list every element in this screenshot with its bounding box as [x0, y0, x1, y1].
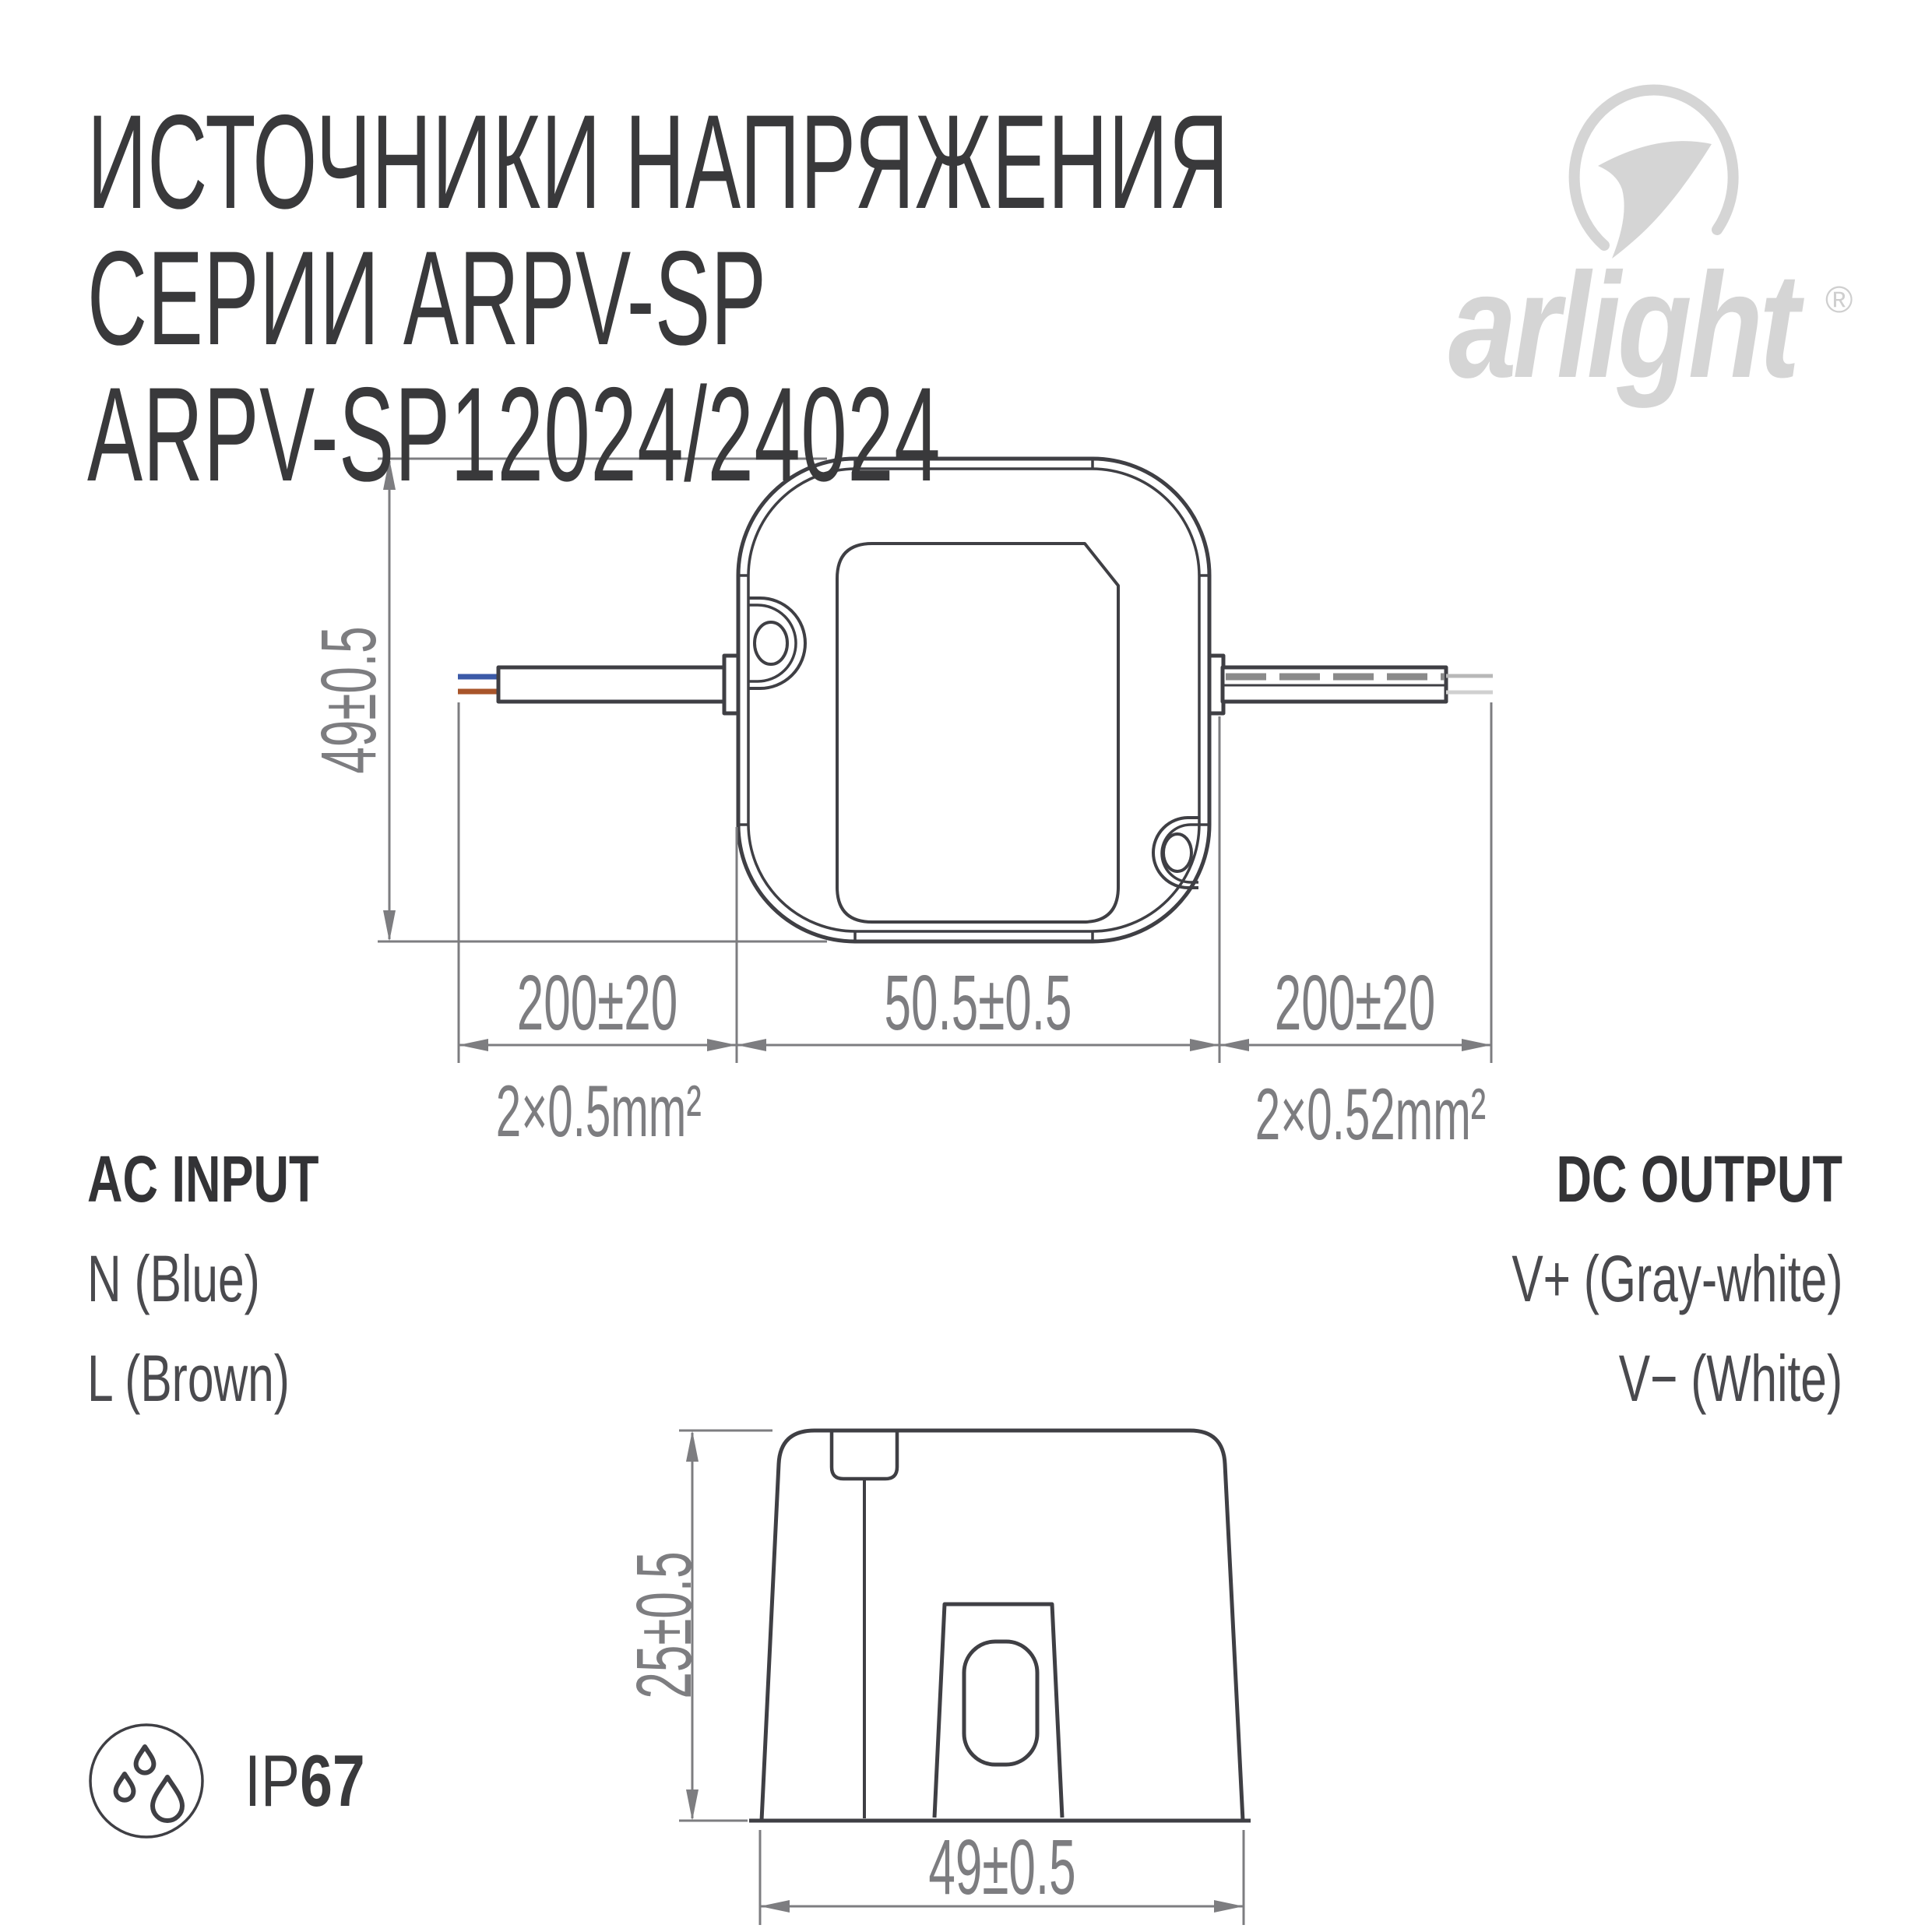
water-drop-small-top — [136, 1747, 154, 1773]
right-wire-length-dim-label: 200±20 — [1258, 964, 1452, 1042]
body-width-dim-label: 50.5±0.5 — [882, 964, 1075, 1042]
dc-output-heading: DC OUTPUT — [1557, 1146, 1842, 1212]
ip-rating-prefix: IP — [245, 1740, 300, 1821]
mounting-ear-bottom-right — [1153, 818, 1198, 888]
water-drop-large — [153, 1777, 182, 1821]
label-area — [837, 544, 1118, 922]
ip-rating-value: 67 — [300, 1740, 365, 1821]
ip67-water-icon — [90, 1725, 202, 1837]
mounting-hole — [1163, 834, 1191, 871]
water-drop-small-left — [116, 1774, 134, 1800]
ac-input-neutral-label: N (Blue) — [87, 1246, 260, 1311]
arlight-logo-text: arlight — [1448, 251, 1797, 400]
ac-input-heading: AC INPUT — [87, 1146, 319, 1212]
page-title-line-1: ИСТОЧНИКИ НАПРЯЖЕНИЯ — [87, 95, 1229, 229]
badge-circle — [90, 1725, 202, 1837]
cable-sheath — [498, 667, 724, 702]
rim-corner-ticks — [738, 459, 1209, 941]
datasheet-page: ИСТОЧНИКИ НАПРЯЖЕНИЯ СЕРИИ ARPV-SP ARPV-… — [0, 0, 1932, 1932]
right-wire-cross-section-label: 2×0.52mm² — [1255, 1078, 1458, 1151]
body-inner-rim — [748, 469, 1199, 931]
page-title-line-3: ARPV-SP12024/24024 — [87, 368, 941, 501]
mounting-ear-top-left — [749, 598, 805, 688]
left-wire-cross-section-label: 2×0.5mm² — [496, 1075, 699, 1148]
dc-output-plus-label: V+ (Gray-white) — [1511, 1246, 1842, 1311]
top-view-drawing — [458, 459, 1493, 941]
body-outer-contour — [738, 459, 1209, 941]
top-cable-notch — [832, 1431, 897, 1479]
side-view-width-dim-label: 49±0.5 — [906, 1828, 1099, 1906]
dc-output-cable — [1209, 656, 1493, 713]
dc-output-minus-label: V− (White) — [1619, 1346, 1842, 1411]
top-view-height-dim-label: 49±0.5 — [306, 604, 392, 797]
side-view-drawing — [749, 1431, 1251, 1821]
ip-rating-label: IP67 — [245, 1744, 365, 1818]
side-body-contour — [762, 1431, 1243, 1821]
bottom-boss-hole — [964, 1642, 1037, 1765]
registered-trademark-symbol: ® — [1825, 282, 1853, 319]
mounting-hole — [755, 622, 787, 664]
arlight-logo-mark — [1575, 90, 1733, 259]
page-title-line-2: СЕРИИ ARPV-SP — [87, 231, 767, 365]
ac-input-line-label: L (Brown) — [87, 1346, 290, 1411]
left-wire-length-dim-label: 200±20 — [501, 964, 694, 1042]
ac-input-cable — [458, 656, 738, 713]
side-view-height-dim-label: 25±0.5 — [621, 1529, 707, 1722]
cable-gland — [724, 656, 738, 713]
bottom-boss — [934, 1604, 1062, 1818]
